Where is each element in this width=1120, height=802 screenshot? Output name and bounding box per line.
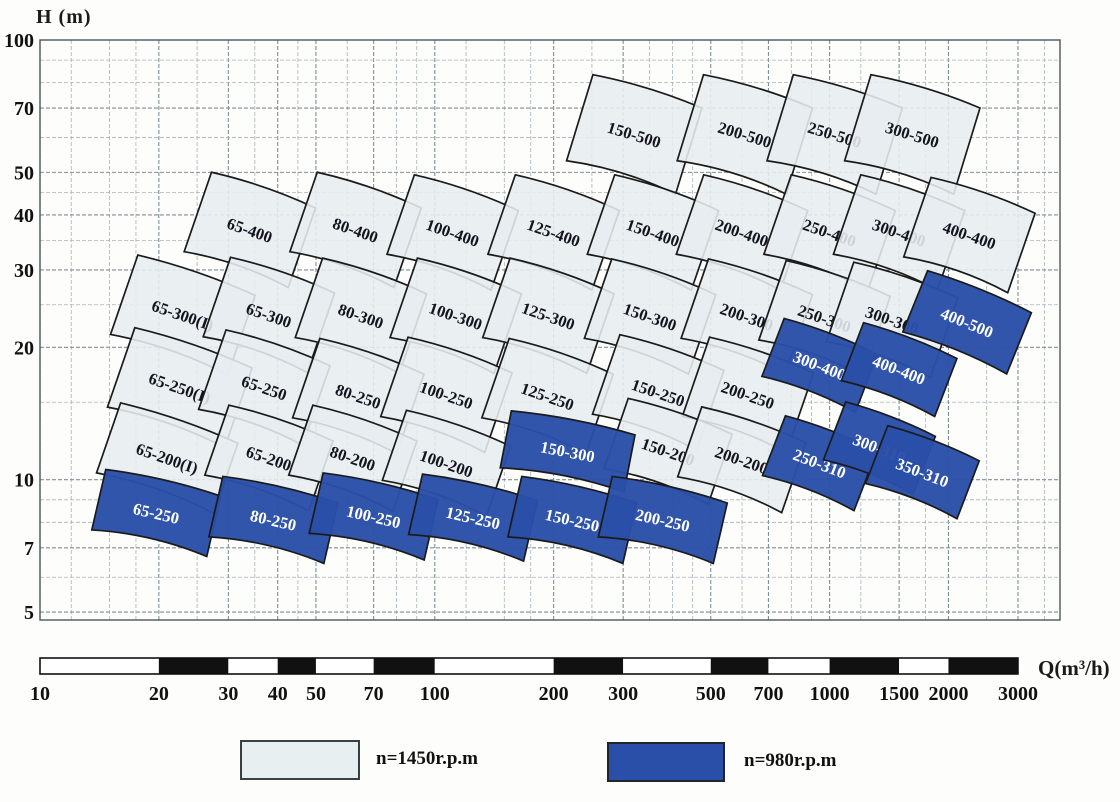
tile-1450-150-500: 150-500 bbox=[567, 72, 703, 194]
y-tick-label: 40 bbox=[14, 205, 34, 227]
y-axis-tick-labels: 10070504030201075 bbox=[4, 30, 34, 624]
x-tick-label: 500 bbox=[696, 683, 726, 705]
x-tick-label: 1500 bbox=[879, 683, 919, 705]
x-tick-label: 200 bbox=[539, 683, 569, 705]
scalebar-segment bbox=[711, 658, 769, 674]
x-tick-label: 3000 bbox=[998, 683, 1038, 705]
x-tick-label: 700 bbox=[753, 683, 783, 705]
legend-swatch-980rpm bbox=[607, 742, 725, 782]
y-tick-label: 20 bbox=[14, 337, 34, 359]
legend-label-1450rpm: n=1450r.p.m bbox=[376, 748, 478, 770]
tile-980-350-310: 350-310 bbox=[866, 423, 981, 518]
scalebar-segment bbox=[316, 658, 374, 674]
y-axis-title: H (m) bbox=[36, 6, 92, 29]
scalebar-segment bbox=[830, 658, 900, 674]
x-axis-title: Q(m³/h) bbox=[1038, 656, 1110, 681]
y-tick-label: 50 bbox=[14, 162, 34, 184]
x-tick-label: 10 bbox=[30, 683, 50, 705]
scalebar-segment bbox=[623, 658, 711, 674]
scalebar-segment bbox=[899, 658, 948, 674]
scalebar-segment bbox=[228, 658, 277, 674]
scalebar-segment bbox=[948, 658, 1018, 674]
x-tick-label: 70 bbox=[364, 683, 384, 705]
y-tick-label: 30 bbox=[14, 260, 34, 282]
scalebar-segment bbox=[768, 658, 829, 674]
x-tick-label: 50 bbox=[306, 683, 326, 705]
x-tick-label: 2000 bbox=[928, 683, 968, 705]
x-tick-label: 40 bbox=[268, 683, 288, 705]
x-tick-label: 100 bbox=[420, 683, 450, 705]
legend-swatch-1450rpm bbox=[240, 740, 360, 780]
legend-label-980rpm: n=980r.p.m bbox=[744, 750, 836, 772]
y-tick-label: 7 bbox=[24, 538, 34, 560]
y-tick-label: 10 bbox=[14, 470, 34, 492]
x-axis-tick-labels: 1020304050701002003005007001000150020003… bbox=[30, 683, 1038, 705]
pump-selection-chart-page: 150-500200-500250-500300-50065-40080-400… bbox=[0, 0, 1120, 802]
scalebar-segment bbox=[40, 658, 159, 674]
scalebar-segment bbox=[159, 658, 229, 674]
y-tick-label: 100 bbox=[4, 30, 34, 52]
x-tick-label: 300 bbox=[608, 683, 638, 705]
x-axis-scale-bar bbox=[40, 658, 1018, 674]
scalebar-segment bbox=[278, 658, 316, 674]
x-tick-label: 20 bbox=[149, 683, 169, 705]
x-tick-label: 30 bbox=[218, 683, 238, 705]
y-tick-label: 5 bbox=[24, 602, 34, 624]
pump-selection-chart: 150-500200-500250-500300-50065-40080-400… bbox=[0, 0, 1120, 802]
y-tick-label: 70 bbox=[14, 98, 34, 120]
x-tick-label: 1000 bbox=[810, 683, 850, 705]
scalebar-segment bbox=[374, 658, 435, 674]
scalebar-segment bbox=[554, 658, 624, 674]
scalebar-segment bbox=[435, 658, 554, 674]
